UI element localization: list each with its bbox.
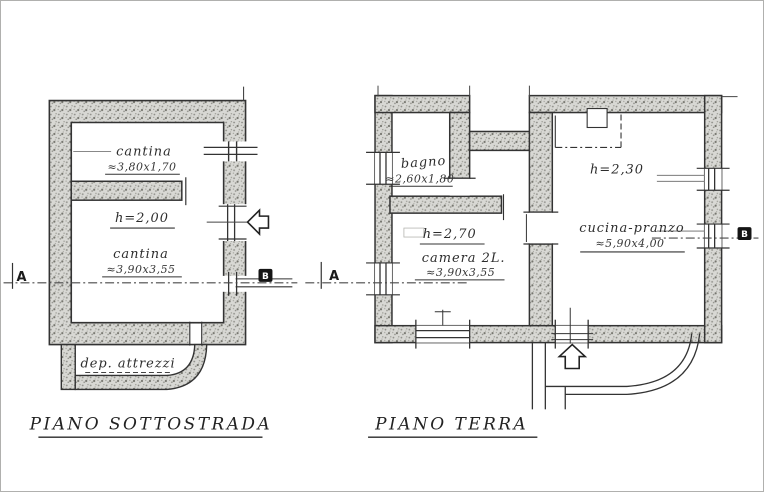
room-label-cucina: cucina-pranzo <box>579 221 684 236</box>
window-symbol <box>204 141 258 161</box>
section-marker-b: B <box>741 230 748 240</box>
room-label-bagno: bagno <box>400 154 446 172</box>
door-opening <box>207 204 248 241</box>
plan-title-sottostrada: PIANO SOTTOSTRADA <box>29 413 273 433</box>
section-marker-a: A <box>16 270 26 285</box>
room-dim-bagno: ≈2,60x1,80 <box>385 172 454 185</box>
room-label-deposito: dep. attrezzi <box>80 357 175 372</box>
room-label-camera: camera 2L. <box>422 251 506 266</box>
floorplan-sheet: A B cantina ≈3,80x1,70 h=2,00 cantina ≈3… <box>0 0 764 492</box>
entrance-arrow-up-icon <box>559 345 585 369</box>
dashed-wardrobe-outline <box>555 109 621 148</box>
section-marker-b: B <box>262 272 269 282</box>
room-label-cantina-1: cantina <box>116 144 172 159</box>
section-marker-a: A <box>329 269 339 284</box>
room-dim-cantina-2: ≈3,90x3,55 <box>106 263 175 276</box>
entrance-arrow-left-icon <box>248 210 269 234</box>
window-symbol <box>657 168 730 190</box>
height-label-camera: h=2,70 <box>423 227 477 242</box>
room-dim-cucina: ≈5,90x4,00 <box>595 237 664 250</box>
window-symbol <box>366 263 400 295</box>
plan-piano-terra: A B bagno ≈2,60x1,80 h=2,70 camera 2L. ≈… <box>305 86 758 438</box>
height-label-sottostrada: h=2,00 <box>115 211 169 226</box>
door-opening <box>523 212 558 244</box>
terra-walls <box>375 86 738 343</box>
room-label-cantina-2: cantina <box>113 247 169 262</box>
external-stair-curve <box>532 334 699 410</box>
room-dim-camera: ≈3,90x3,55 <box>426 266 495 279</box>
height-label-cucina: h=2,30 <box>590 162 644 177</box>
plan-piano-sottostrada: A B cantina ≈3,80x1,70 h=2,00 cantina ≈3… <box>4 87 298 438</box>
room-dim-cantina-1: ≈3,80x1,70 <box>107 160 176 173</box>
door-opening <box>551 308 593 349</box>
floorplan-drawing: A B cantina ≈3,80x1,70 h=2,00 cantina ≈3… <box>1 1 763 491</box>
plan-title-terra: PIANO TERRA <box>374 413 528 433</box>
